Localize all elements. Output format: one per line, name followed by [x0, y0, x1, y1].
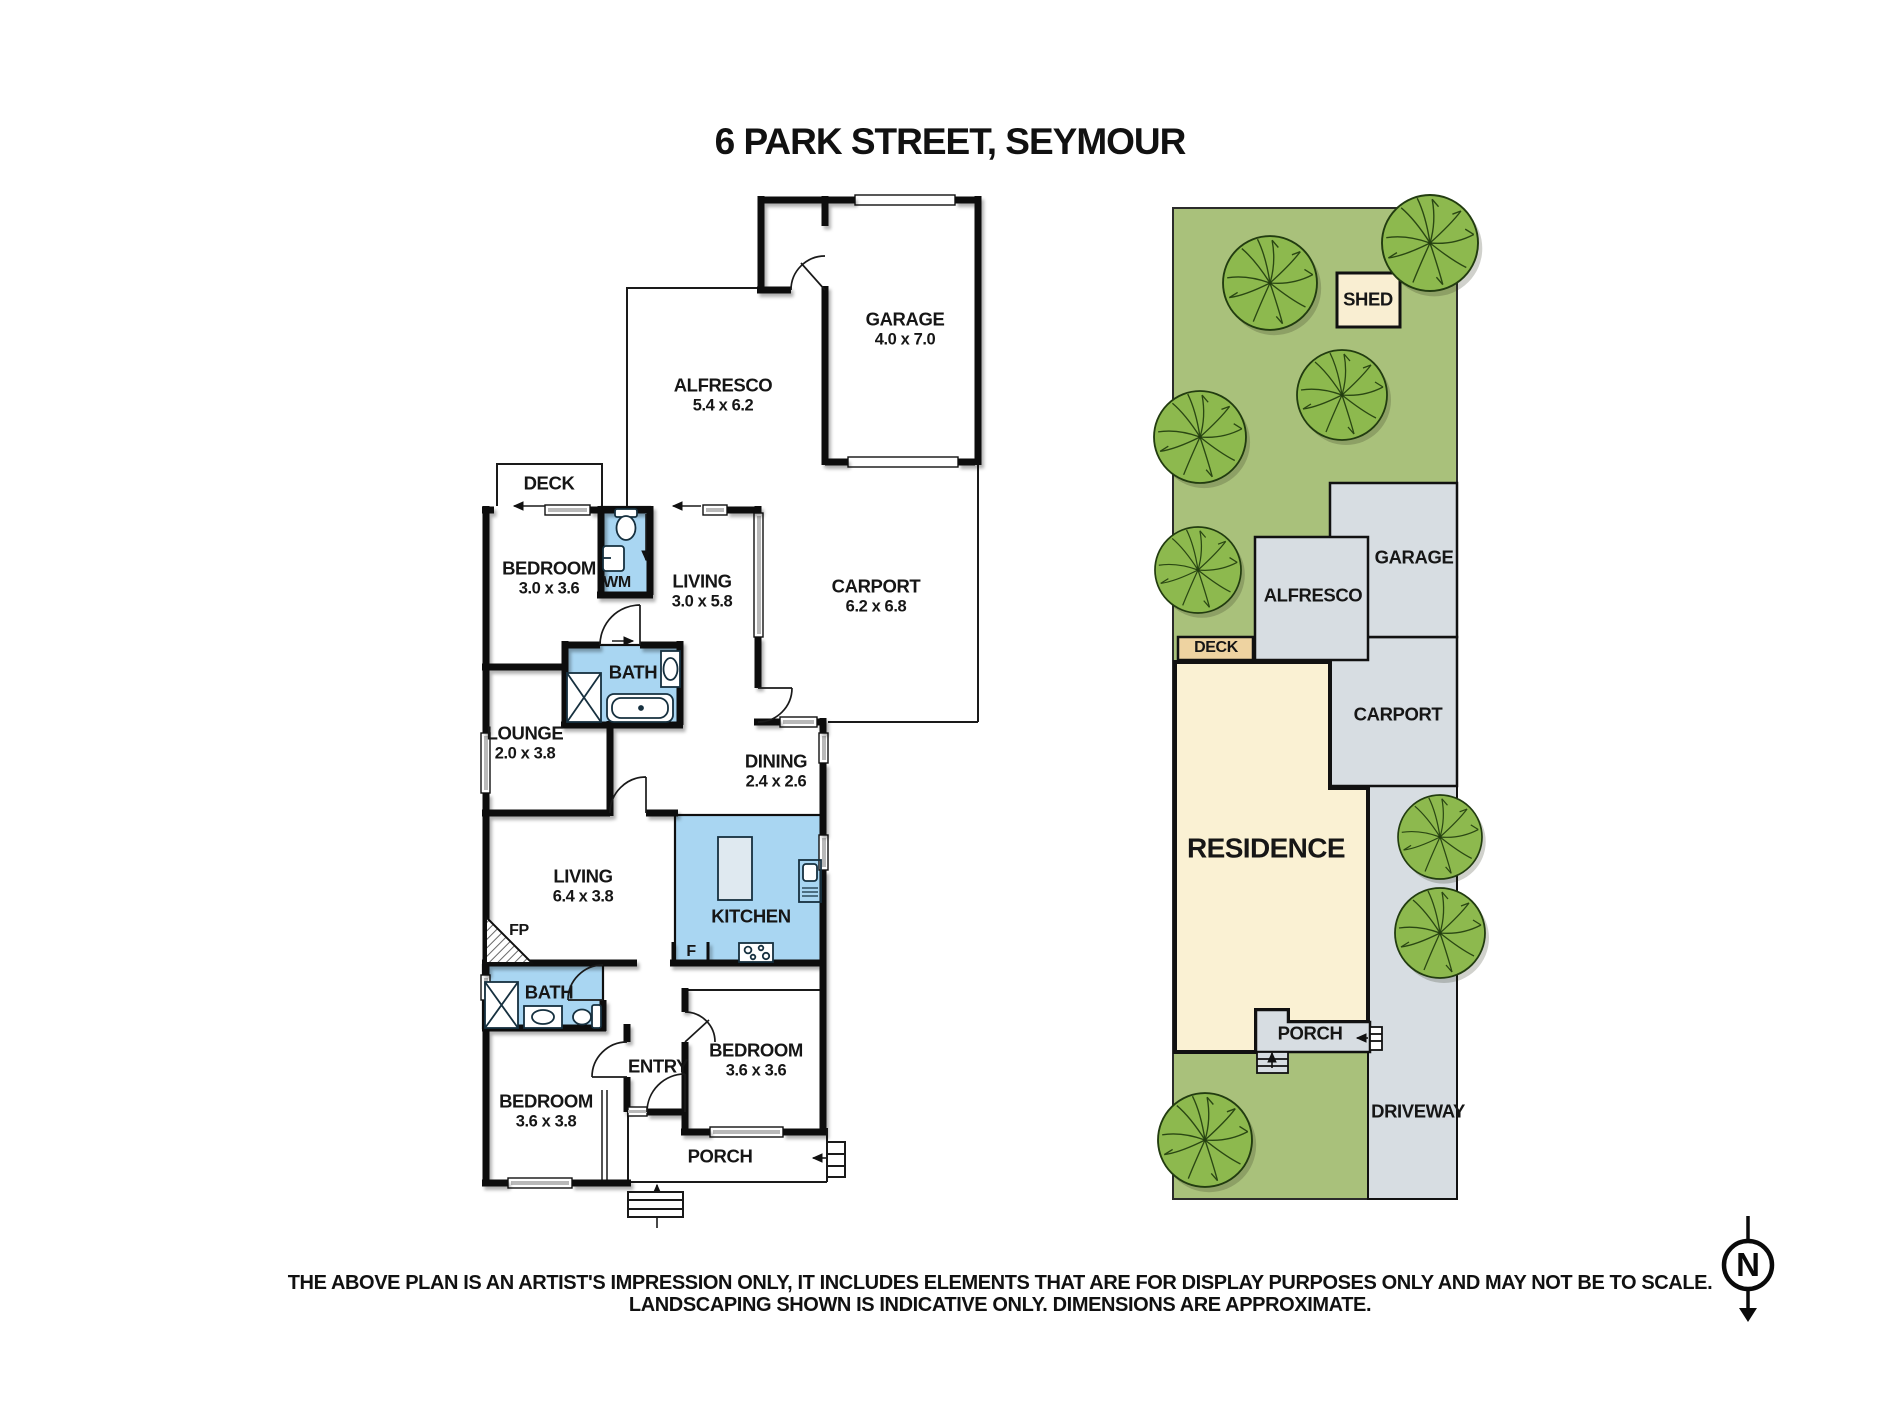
kitchen-island: [718, 837, 752, 900]
room-label: KITCHEN: [711, 907, 790, 928]
robe-line: [602, 1090, 607, 1181]
room-label: DECK: [524, 474, 575, 495]
room-label: DINING 2.4 x 2.6: [745, 751, 807, 790]
room-label: LIVING 6.4 x 3.8: [553, 866, 614, 905]
site-plan: [1154, 195, 1489, 1199]
room-label: LIVING 3.0 x 5.8: [672, 571, 733, 610]
basin-icon: [661, 651, 680, 687]
compass-letter: N: [1736, 1246, 1760, 1284]
disclaimer-line1: THE ABOVE PLAN IS AN ARTIST'S IMPRESSION…: [288, 1272, 1713, 1294]
disclaimer-line2: LANDSCAPING SHOWN IS INDICATIVE ONLY. DI…: [288, 1294, 1713, 1316]
room-label: CARPORT 6.2 x 6.8: [832, 576, 921, 615]
site-label: DRIVEWAY: [1371, 1102, 1465, 1123]
room-label: WM: [603, 574, 631, 592]
room-label: PORCH: [688, 1147, 753, 1168]
site-label: ALFRESCO: [1264, 586, 1363, 607]
floorplan-page: 6 PARK STREET, SEYMOUR GARAGE 4.0 x 7.0 …: [0, 0, 1900, 1425]
room-label: BATH: [609, 663, 657, 684]
room-label: FP: [509, 922, 529, 940]
room-label: ALFRESCO 5.4 x 6.2: [674, 375, 773, 414]
shower2-icon: [485, 982, 518, 1028]
room-label: BATH: [525, 983, 573, 1004]
site-label: SHED: [1343, 290, 1393, 311]
room-label: BEDROOM 3.6 x 3.6: [709, 1040, 803, 1079]
stove-icon: [739, 943, 773, 962]
bathtub-icon: [607, 694, 673, 722]
room-label: LOUNGE 2.0 x 3.8: [487, 723, 564, 762]
basin2-icon: [524, 1006, 562, 1028]
site-label: GARAGE: [1375, 548, 1454, 569]
site-label: RESIDENCE: [1187, 832, 1345, 863]
room-label: GARAGE 4.0 x 7.0: [866, 309, 945, 348]
room-label: F: [686, 943, 695, 961]
disclaimer-text: THE ABOVE PLAN IS AN ARTIST'S IMPRESSION…: [288, 1272, 1713, 1316]
site-label: DECK: [1194, 639, 1238, 657]
shower-icon: [567, 673, 601, 722]
site-label: PORCH: [1278, 1024, 1343, 1045]
room-label: ENTRY: [628, 1057, 688, 1078]
room-label: BEDROOM 3.6 x 3.8: [499, 1091, 593, 1130]
plan-drawing: [0, 0, 1900, 1425]
site-label: CARPORT: [1354, 705, 1443, 726]
room-label: BEDROOM 3.0 x 3.6: [502, 558, 596, 597]
page-title: 6 PARK STREET, SEYMOUR: [715, 121, 1186, 163]
